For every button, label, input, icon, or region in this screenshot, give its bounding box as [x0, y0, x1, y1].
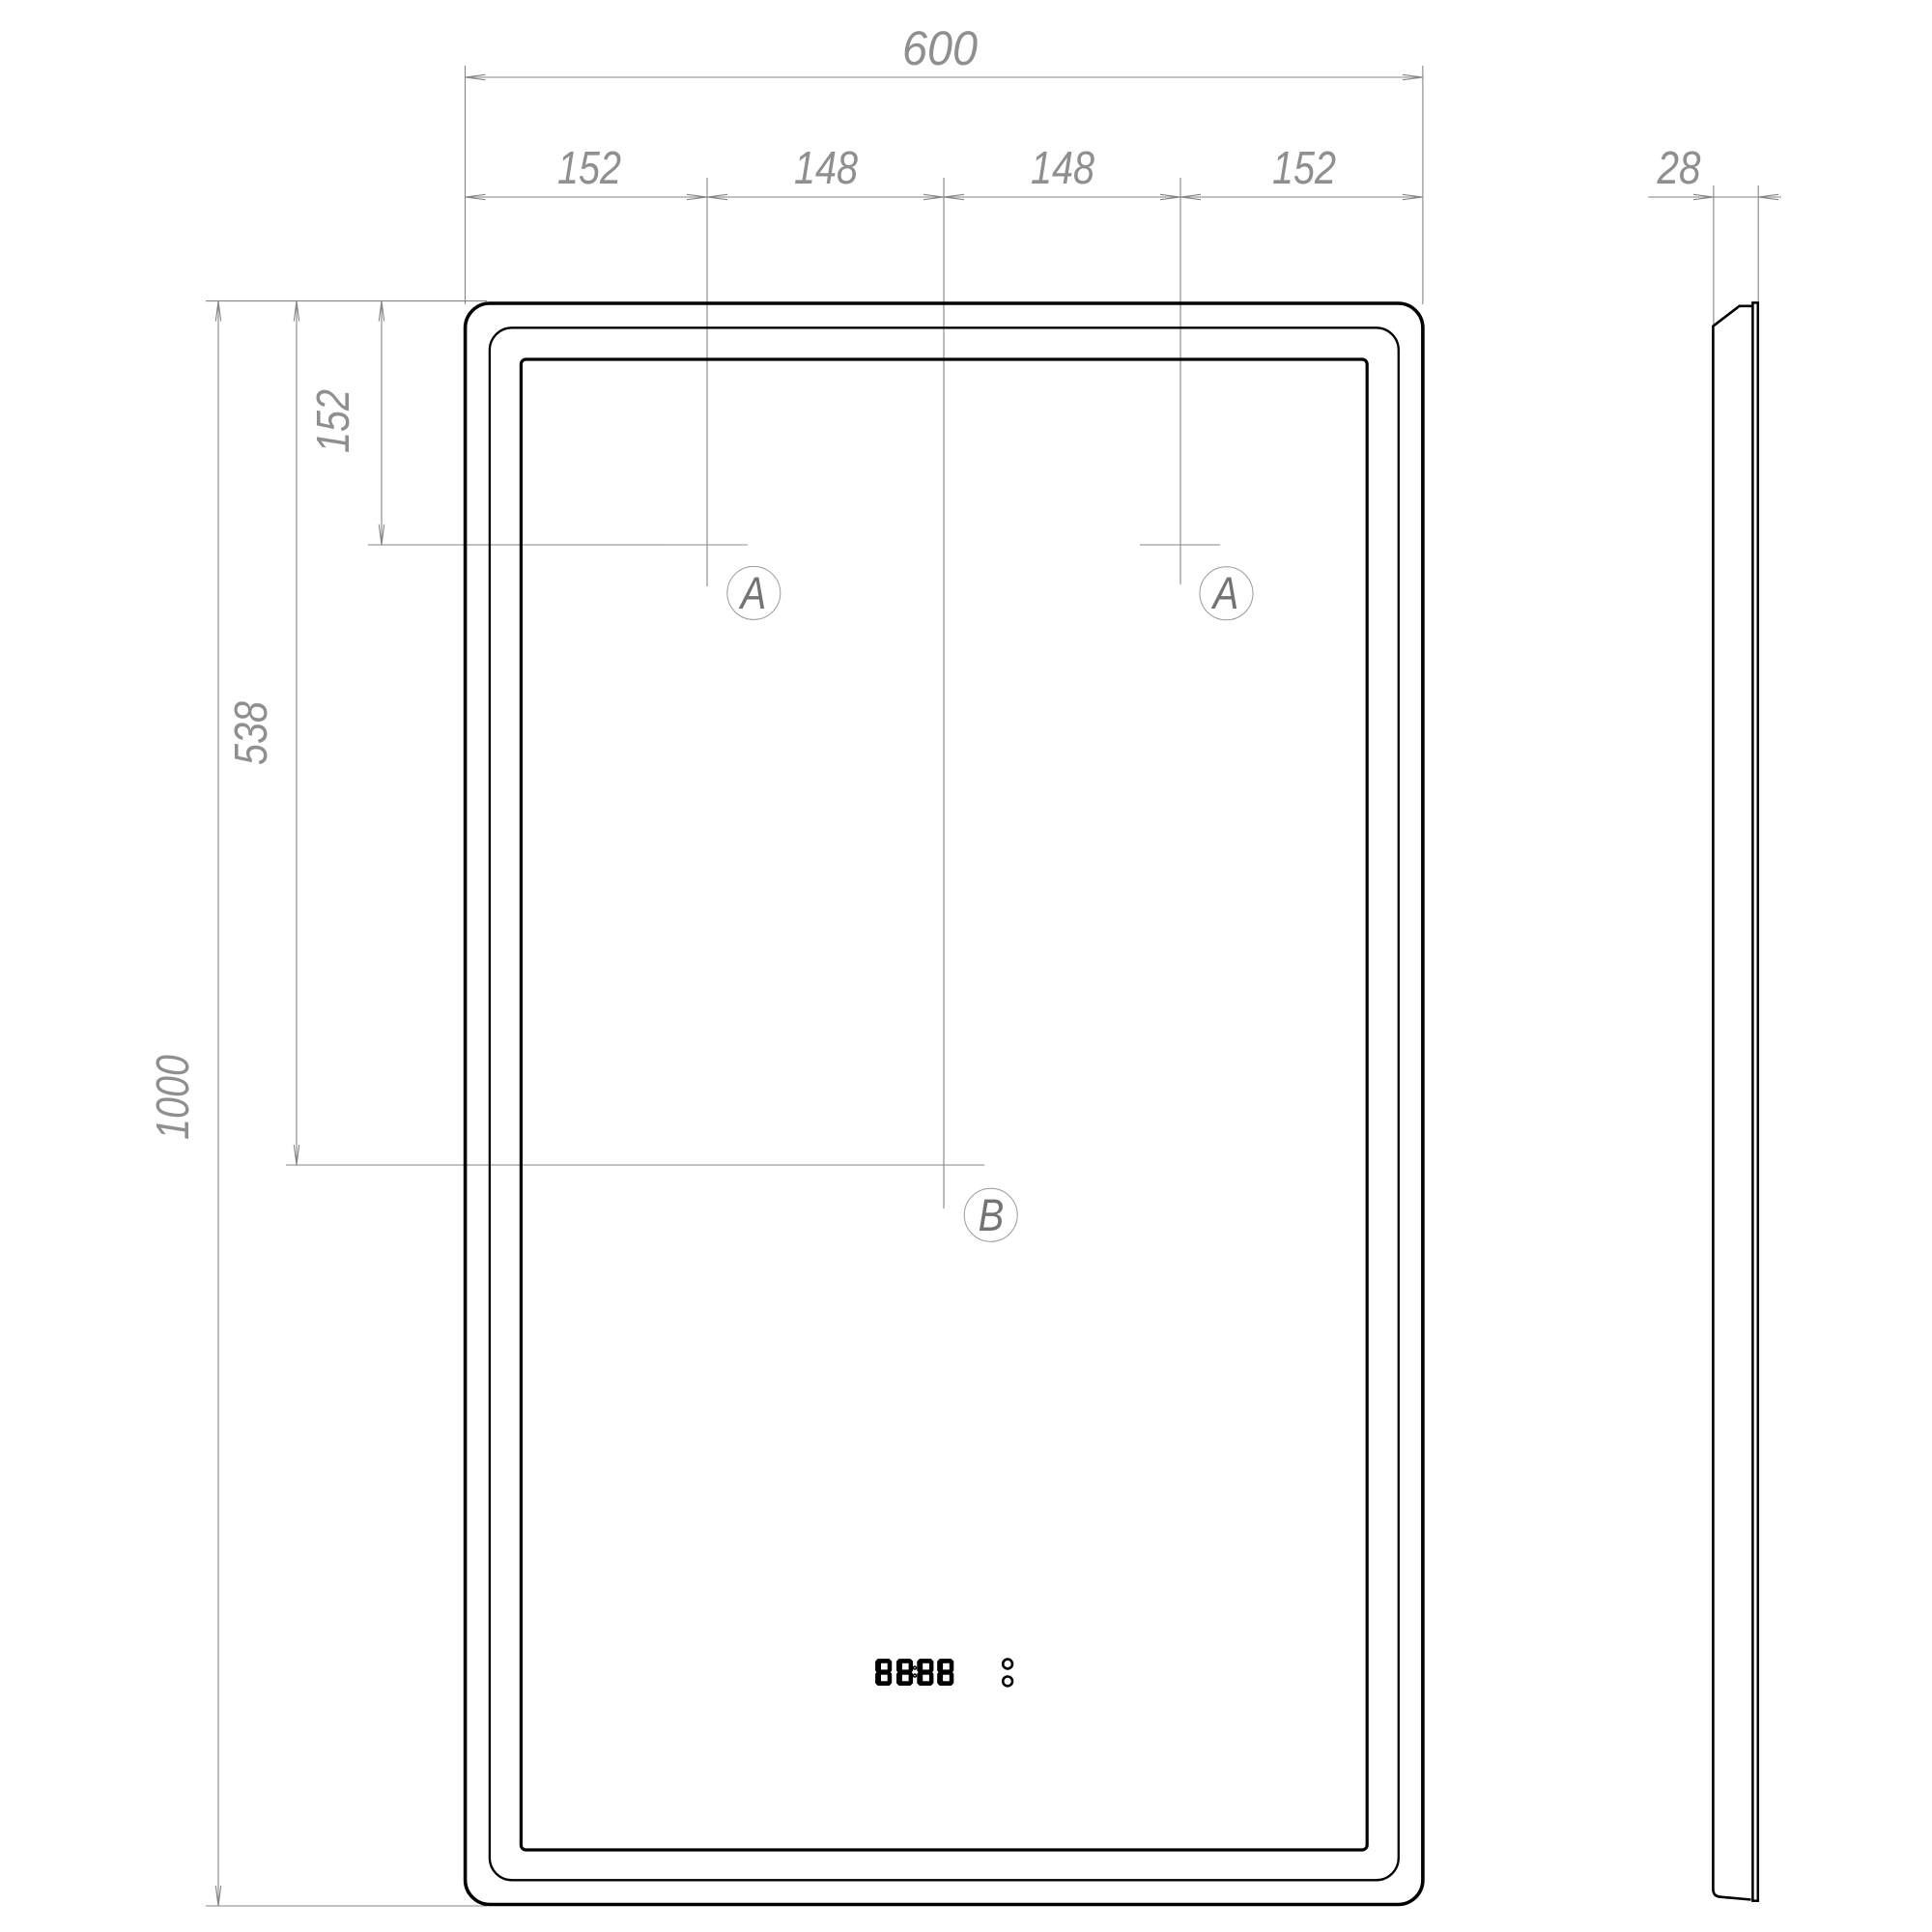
svg-text:B: B: [979, 1189, 1005, 1240]
svg-text:148: 148: [1031, 143, 1094, 194]
svg-text:A: A: [738, 567, 766, 618]
svg-text:1000: 1000: [148, 1055, 199, 1140]
svg-text:152: 152: [557, 143, 621, 194]
svg-text:152: 152: [1272, 143, 1336, 194]
svg-text:28: 28: [1657, 143, 1701, 194]
svg-text:152: 152: [308, 389, 359, 453]
svg-text:A: A: [1210, 567, 1238, 618]
svg-text:148: 148: [794, 143, 858, 194]
svg-text:538: 538: [226, 701, 277, 765]
svg-text:600: 600: [902, 21, 978, 75]
